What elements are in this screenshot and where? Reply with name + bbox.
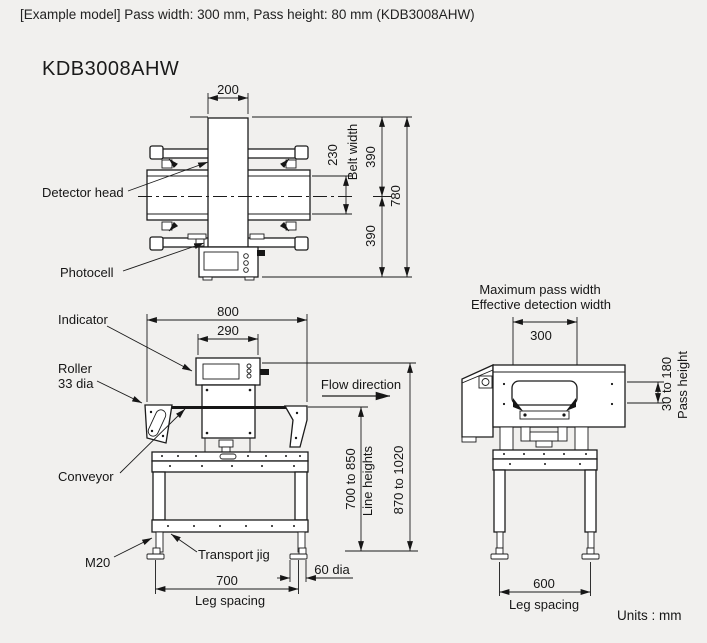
front-dim-230: 230 — [325, 144, 340, 166]
side-leg-spacing-label: Leg spacing — [195, 593, 265, 608]
end-stand — [491, 450, 599, 559]
diagram-canvas: [Example model] Pass width: 300 mm, Pass… — [0, 0, 707, 643]
total-height-value: 870 to 1020 — [391, 446, 406, 515]
line-heights-value: 700 to 850 — [343, 448, 358, 509]
belt-width-label: Belt width — [345, 124, 360, 180]
front-control-panel — [199, 247, 265, 280]
foot-dia-label: 60 dia — [314, 562, 350, 577]
end-supports — [500, 427, 588, 450]
side-view: 800 290 Indicator Roller 33 dia Conveyor… — [58, 304, 418, 608]
side-dim-290: 290 — [217, 323, 239, 338]
transport-jig-label: Transport jig — [198, 547, 270, 562]
roller-dia-label: 33 dia — [58, 376, 94, 391]
pass-height-value: 30 to 180 — [659, 357, 674, 411]
front-dim-780: 780 — [388, 185, 403, 207]
units-label: Units : mm — [617, 608, 682, 623]
front-dim-200: 200 — [217, 82, 239, 97]
end-photocell-housing — [462, 365, 493, 442]
technical-drawing: 200 230 Belt width 390 780 390 Detector … — [0, 0, 707, 643]
side-stand — [147, 452, 308, 559]
side-belt — [150, 406, 307, 409]
front-detector-head — [208, 118, 248, 247]
flow-direction-label: Flow direction — [321, 377, 401, 392]
front-dim-390-bottom: 390 — [363, 225, 378, 247]
end-dim-300: 300 — [530, 328, 552, 343]
roller-leader — [97, 381, 142, 403]
side-leg-spacing-value: 700 — [216, 573, 238, 588]
m20-label: M20 — [85, 555, 110, 570]
front-dim-390-top: 390 — [363, 146, 378, 168]
front-view: 200 230 Belt width 390 780 390 Detector … — [42, 82, 412, 280]
pass-height-label: Pass height — [675, 351, 690, 419]
detector-head-label: Detector head — [42, 185, 124, 200]
side-detector-head — [196, 358, 269, 452]
end-leg-spacing-value: 600 — [533, 576, 555, 591]
end-view: Maximum pass width Effective detection w… — [462, 282, 690, 612]
conveyor-label: Conveyor — [58, 469, 114, 484]
side-dim-800: 800 — [217, 304, 239, 319]
end-leg-spacing-label: Leg spacing — [509, 597, 579, 612]
side-roller-bracket — [145, 405, 172, 443]
side-end-bracket — [285, 406, 307, 447]
indicator-label: Indicator — [58, 312, 109, 327]
line-heights-label: Line heights — [360, 445, 375, 516]
effective-width-label: Effective detection width — [471, 297, 611, 312]
roller-label: Roller — [58, 361, 93, 376]
end-detector-body — [493, 365, 625, 427]
max-pass-width-label: Maximum pass width — [479, 282, 600, 297]
indicator-leader — [107, 326, 192, 371]
m20-leader — [114, 538, 152, 557]
photocell-label: Photocell — [60, 265, 114, 280]
transport-jig-leader — [171, 534, 197, 552]
